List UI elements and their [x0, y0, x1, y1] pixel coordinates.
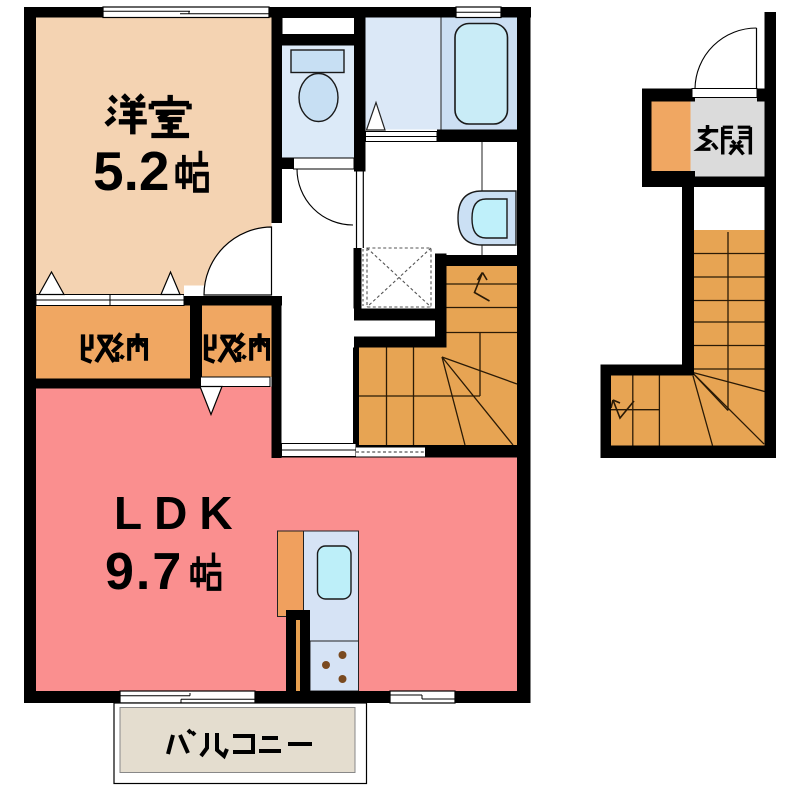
svg-text:9.7: 9.7: [105, 543, 183, 601]
svg-text:5.2: 5.2: [93, 140, 169, 202]
svg-text:LDK: LDK: [114, 487, 245, 539]
